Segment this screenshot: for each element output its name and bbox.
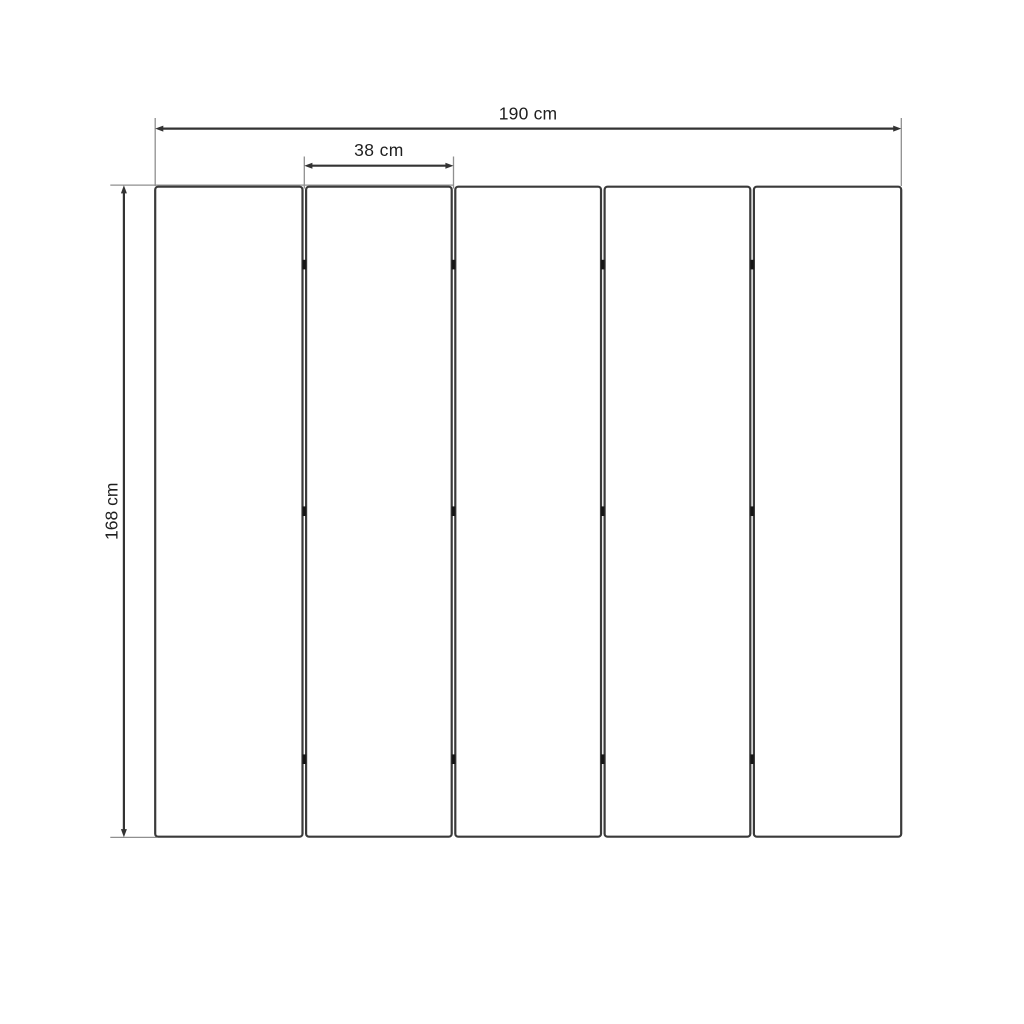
svg-text:168 cm: 168 cm bbox=[102, 483, 122, 540]
svg-text:38 cm: 38 cm bbox=[354, 140, 404, 160]
svg-text:190 cm: 190 cm bbox=[499, 103, 558, 123]
